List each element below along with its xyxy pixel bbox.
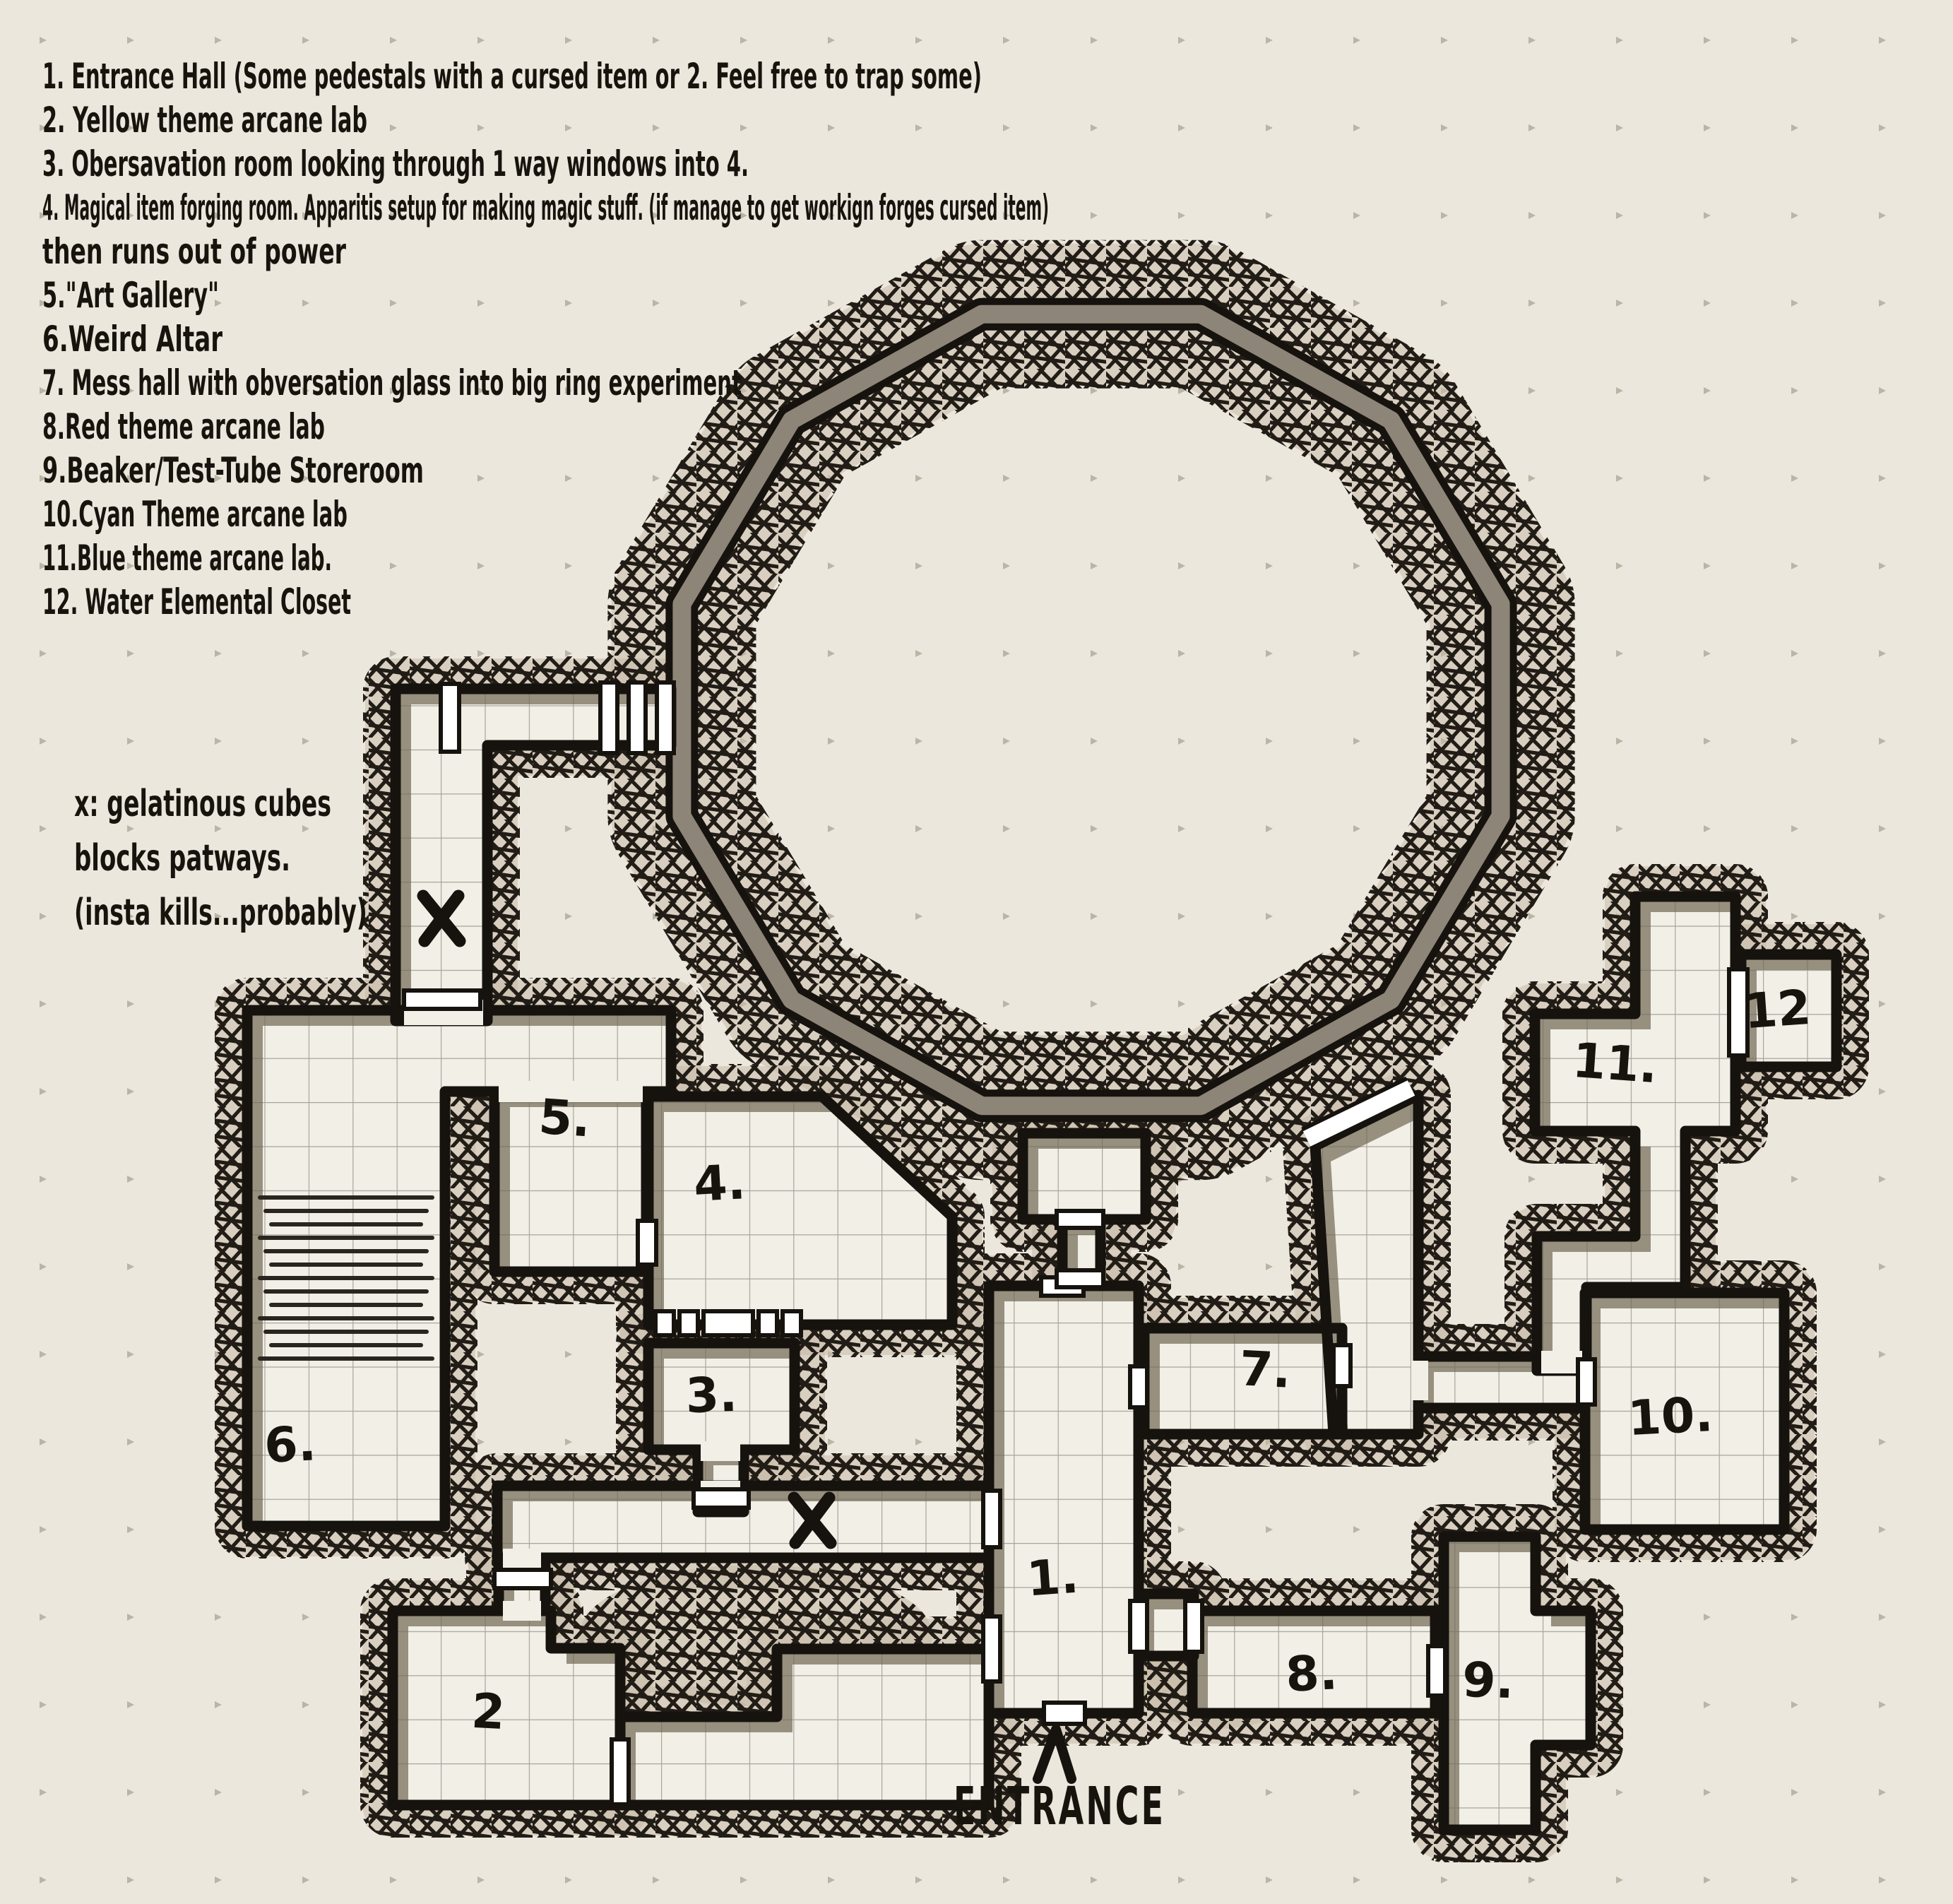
- door-icon: [1057, 1211, 1103, 1228]
- door-icon: [629, 682, 646, 753]
- door-icon: [612, 1739, 629, 1804]
- room-label-3: 3.: [684, 1367, 738, 1425]
- door-icon: [679, 1311, 698, 1335]
- door-icon: [404, 991, 480, 1009]
- door-icon: [1044, 1703, 1085, 1724]
- entrance-label: ENTRANCE: [954, 1776, 1165, 1837]
- dungeon-map-canvas: 1.23.4.5.6.7.8.9.10.11.12ENTRANCE1. Entr…: [0, 0, 1953, 1904]
- legend-item: 6.Weird Altar: [42, 319, 222, 360]
- note-line: blocks patways.: [74, 837, 290, 880]
- legend-item: 4. Magical item forging room. Apparitis …: [42, 187, 1049, 228]
- legend-item: 12. Water Elemental Closet: [42, 581, 351, 622]
- room-label-7: 7.: [1238, 1341, 1293, 1400]
- room-label-8: 8.: [1284, 1645, 1338, 1703]
- note-line: (insta kills...probably): [74, 892, 367, 934]
- door-icon: [759, 1311, 777, 1335]
- door-icon: [655, 1311, 674, 1335]
- room-label-2: 2: [470, 1684, 506, 1741]
- legend-item: 1. Entrance Hall (Some pedestals with a …: [42, 56, 982, 97]
- door-icon: [1428, 1646, 1445, 1696]
- room-label-9: 9.: [1461, 1652, 1515, 1710]
- legend-item: 7. Mess hall with obversation glass into…: [42, 362, 742, 403]
- legend-item: 9.Beaker/Test-Tube Storeroom: [42, 450, 424, 491]
- legend-item: 5."Art Gallery": [42, 275, 219, 316]
- door-icon: [1334, 1345, 1351, 1386]
- room-label-10: 10.: [1627, 1387, 1714, 1447]
- door-icon: [704, 1311, 753, 1335]
- door-icon: [694, 1489, 749, 1508]
- legend-item: 11.Blue theme arcane lab.: [42, 538, 332, 579]
- legend-item: then runs out of power: [42, 231, 346, 272]
- room-label-12: 12: [1742, 980, 1812, 1040]
- door-icon: [1130, 1601, 1147, 1652]
- door-icon: [1057, 1270, 1103, 1287]
- room-label-6: 6.: [263, 1416, 317, 1474]
- door-icon: [638, 1221, 656, 1265]
- door-icon: [441, 684, 459, 752]
- door-icon: [600, 682, 617, 753]
- door-icon: [783, 1311, 801, 1335]
- note-line: x: gelatinous cubes: [74, 783, 331, 825]
- legend-item: 3. Obersavation room looking through 1 w…: [42, 143, 749, 184]
- door-icon: [657, 682, 674, 753]
- legend-item: 10.Cyan Theme arcane lab: [42, 494, 348, 535]
- room-label-4: 4.: [692, 1154, 747, 1213]
- room-label-1: 1.: [1025, 1549, 1080, 1608]
- legend-item: 2. Yellow theme arcane lab: [42, 100, 367, 141]
- door-icon: [1185, 1601, 1202, 1652]
- door-icon: [983, 1616, 1000, 1681]
- legend-item: 8.Red theme arcane lab: [42, 406, 325, 447]
- door-icon: [494, 1570, 551, 1588]
- door-icon: [1578, 1359, 1595, 1405]
- room-label-11: 11.: [1571, 1033, 1660, 1094]
- room-label-5: 5.: [537, 1089, 592, 1149]
- door-icon: [983, 1491, 1000, 1547]
- door-icon: [1130, 1366, 1147, 1407]
- dungeon-map-page: 1.23.4.5.6.7.8.9.10.11.12ENTRANCE1. Entr…: [0, 0, 1953, 1904]
